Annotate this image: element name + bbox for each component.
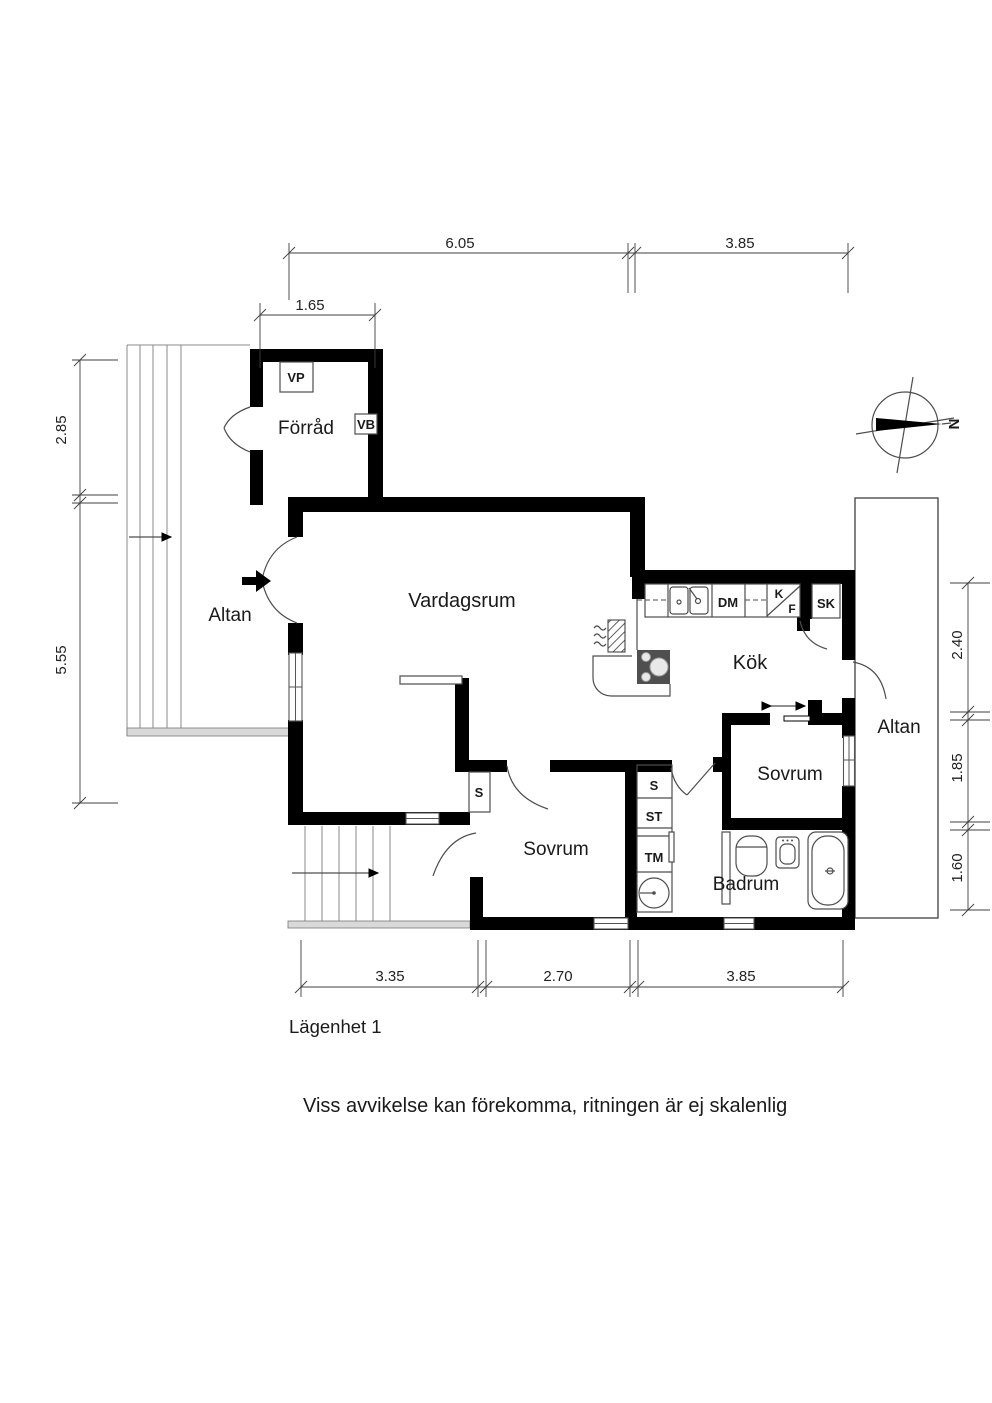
dim-top-1: 6.05 xyxy=(445,235,474,252)
room-label-vardagsrum: Vardagsrum xyxy=(408,590,515,612)
floorplan-drawing: N Förråd Vardagsrum Altan Kök Sovrum Alt… xyxy=(0,0,992,1403)
plan-disclaimer: Viss avvikelse kan förekomma, ritningen … xyxy=(303,1095,787,1117)
room-label-kok: Kök xyxy=(733,652,768,674)
dim-forrad: 1.65 xyxy=(295,297,324,314)
entrance-arrow-icon xyxy=(242,570,271,592)
deck-left xyxy=(127,345,290,736)
dim-right-1: 2.40 xyxy=(949,630,966,659)
compass-north-label: N xyxy=(945,419,962,430)
bathroom-fixtures xyxy=(669,832,848,909)
doors xyxy=(224,407,886,876)
livingroom-shelf xyxy=(400,676,462,684)
room-label-altan-right: Altan xyxy=(877,717,920,738)
window-bathroom-south xyxy=(724,918,754,929)
dim-left-2: 5.55 xyxy=(53,645,70,674)
room-label-altan-left: Altan xyxy=(208,605,251,626)
dim-bottom-2: 2.70 xyxy=(543,968,572,985)
plan-title: Lägenhet 1 xyxy=(289,1016,382,1037)
label-f: F xyxy=(788,602,795,616)
storage-door-arc xyxy=(224,407,250,452)
dim-bottom-3: 3.85 xyxy=(726,968,755,985)
dim-left-1: 2.85 xyxy=(53,415,70,444)
entrance-door-arc xyxy=(433,833,476,876)
dim-bottom-1: 3.35 xyxy=(375,968,404,985)
label-dm: DM xyxy=(718,595,738,610)
dim-right-3: 1.60 xyxy=(949,853,966,882)
floorplan-page: N Förråd Vardagsrum Altan Kök Sovrum Alt… xyxy=(0,0,992,1403)
label-s-utility: S xyxy=(650,778,659,793)
captions: Lägenhet 1 Viss avvikelse kan förekomma,… xyxy=(289,1016,787,1117)
bedroom1-sliding-door xyxy=(771,706,810,721)
label-tm: TM xyxy=(645,850,664,865)
room-label-badrum: Badrum xyxy=(713,874,780,895)
room-label-sovrum-right: Sovrum xyxy=(757,764,822,785)
washbasin-icon xyxy=(776,837,799,868)
deck-right xyxy=(855,498,938,918)
label-s-hall: S xyxy=(475,785,484,800)
fireplace-icon xyxy=(594,620,625,652)
label-sk: SK xyxy=(817,596,836,611)
window-livingroom-west xyxy=(289,653,302,721)
stove-icon xyxy=(637,650,670,684)
label-k: K xyxy=(775,587,784,601)
entrance-stairs xyxy=(288,826,470,928)
dim-right-2: 1.85 xyxy=(949,753,966,782)
bedroom2-door-arc xyxy=(507,766,548,809)
room-label-forrad: Förråd xyxy=(278,418,334,439)
sink-icon xyxy=(670,587,708,614)
room-label-sovrum-bottom: Sovrum xyxy=(523,839,588,860)
label-vb: VB xyxy=(357,417,375,432)
label-vp: VP xyxy=(287,370,305,385)
label-st: ST xyxy=(646,809,663,824)
window-bedroom-east xyxy=(844,736,855,786)
compass: N xyxy=(856,377,962,473)
bathroom-door xyxy=(671,763,715,795)
dim-top-2: 3.85 xyxy=(725,235,754,252)
compass-needle-icon xyxy=(876,418,942,431)
window-livingroom-south xyxy=(406,813,439,824)
toilet-icon xyxy=(736,836,767,876)
partition xyxy=(669,832,674,862)
window-bedroom-south xyxy=(594,918,628,929)
washing-machine-icon xyxy=(639,878,669,908)
bathtub-icon xyxy=(808,832,848,909)
